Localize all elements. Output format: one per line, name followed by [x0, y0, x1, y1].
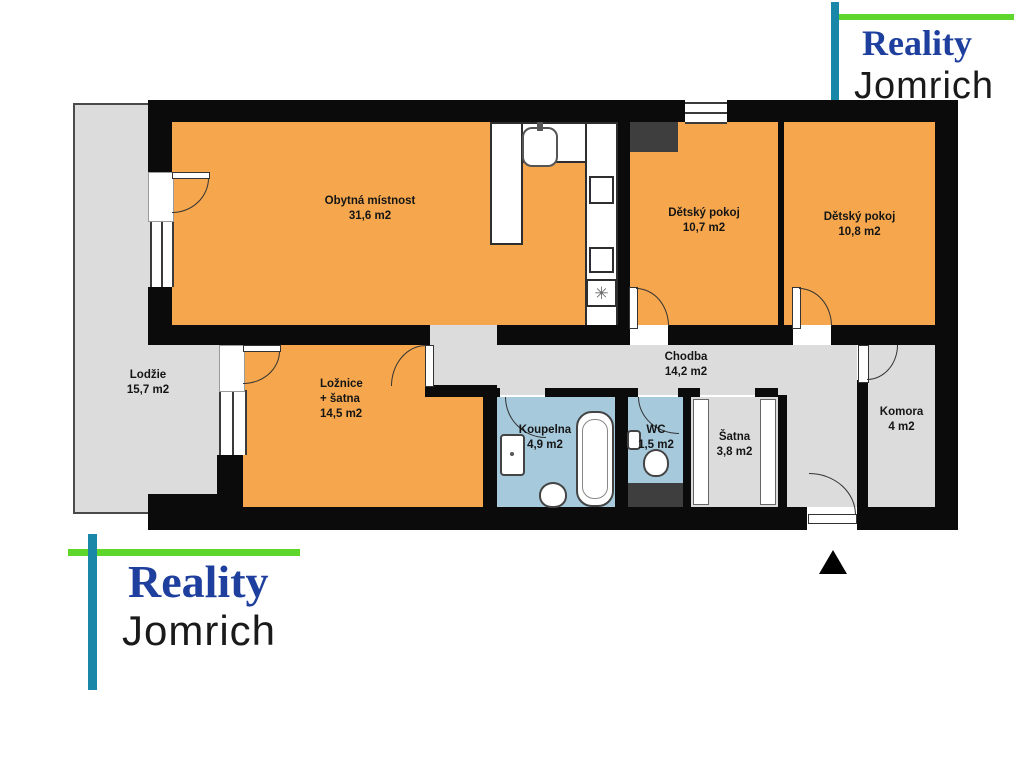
wall — [615, 397, 628, 507]
window — [685, 102, 727, 124]
room-area: 14,2 m2 — [611, 365, 761, 380]
room-area: 15,7 m2 — [98, 383, 198, 398]
room-name-2: + šatna — [320, 392, 430, 407]
room-area: 31,6 m2 — [280, 209, 460, 224]
room-name: Komora — [868, 405, 935, 420]
room-area: 10,7 m2 — [630, 221, 778, 236]
logo-reality-text: Reality — [862, 24, 972, 64]
room-name: Chodba — [611, 350, 761, 365]
room-name: Ložnice — [320, 377, 430, 392]
room-name: Šatna — [691, 430, 778, 445]
window — [150, 220, 174, 287]
room-area: 14,5 m2 — [320, 407, 430, 422]
room-label-loggia: Lodžie 15,7 m2 — [98, 368, 198, 398]
room-label-bedroom: Ložnice + šatna 14,5 m2 — [320, 377, 430, 422]
balcony-door-gap — [219, 345, 245, 392]
shaft-block — [628, 483, 683, 507]
wall — [225, 507, 807, 530]
logo-green-line — [836, 14, 1014, 20]
room-name: Dětský pokoj — [630, 206, 778, 221]
room-label-living: Obytná místnost 31,6 m2 — [280, 194, 460, 224]
wall — [678, 388, 700, 397]
logo-reality-text: Reality — [128, 557, 269, 608]
kitchen-counter — [490, 122, 523, 245]
wall — [148, 287, 172, 325]
room-label-komora: Komora 4 m2 — [868, 405, 935, 435]
wall — [545, 388, 638, 397]
wall — [148, 494, 225, 530]
wall — [668, 325, 793, 345]
oven-icon — [589, 176, 614, 204]
window — [219, 390, 247, 455]
entrance-arrow-icon — [819, 550, 847, 574]
room-area: 4,9 m2 — [500, 438, 590, 453]
entrance-door-leaf — [808, 514, 857, 524]
kitchen-sink-icon — [522, 127, 558, 167]
wall — [483, 385, 497, 507]
room-label-child1: Dětský pokoj 10,7 m2 — [630, 206, 778, 236]
wall — [483, 388, 500, 397]
wall — [497, 325, 630, 345]
logo-jomrich-text: Jomrich — [122, 608, 276, 654]
wall — [727, 100, 958, 122]
wall — [831, 325, 958, 345]
wall — [755, 388, 778, 397]
room-label-bath: Koupelna 4,9 m2 — [500, 423, 590, 453]
wall — [217, 455, 243, 507]
logo-green-line — [68, 549, 300, 556]
logo-teal-line — [88, 534, 97, 690]
stove-icon: ✳ — [586, 279, 617, 307]
room-label-hall: Chodba 14,2 m2 — [611, 350, 761, 380]
wall — [148, 325, 430, 345]
toilet-icon — [643, 449, 669, 477]
room-area: 1,5 m2 — [630, 438, 682, 453]
toilet-icon — [539, 482, 567, 508]
room-label-satna: Šatna 3,8 m2 — [691, 430, 778, 460]
cabinet-icon — [589, 247, 614, 273]
room-area: 3,8 m2 — [691, 445, 778, 460]
floorplan-page: Reality Jomrich Reality Jomrich — [0, 0, 1024, 768]
room-name: Dětský pokoj — [784, 210, 935, 225]
room-label-wc: WC 1,5 m2 — [630, 423, 682, 453]
room-name: Obytná místnost — [280, 194, 460, 209]
room-name: Lodžie — [98, 368, 198, 383]
shaft-block — [630, 122, 678, 152]
wall — [148, 100, 685, 122]
wall — [857, 380, 868, 507]
room-label-child2: Dětský pokoj 10,8 m2 — [784, 210, 935, 240]
faucet-icon — [537, 122, 543, 131]
wall — [148, 122, 172, 172]
room-area: 10,8 m2 — [784, 225, 935, 240]
wall — [683, 397, 691, 507]
wall — [857, 507, 958, 530]
balcony-door-gap — [148, 172, 174, 222]
room-area: 4 m2 — [868, 420, 935, 435]
wall — [778, 395, 787, 507]
room-name: WC — [630, 423, 682, 438]
hall-passage — [430, 325, 497, 345]
room-name: Koupelna — [500, 423, 590, 438]
